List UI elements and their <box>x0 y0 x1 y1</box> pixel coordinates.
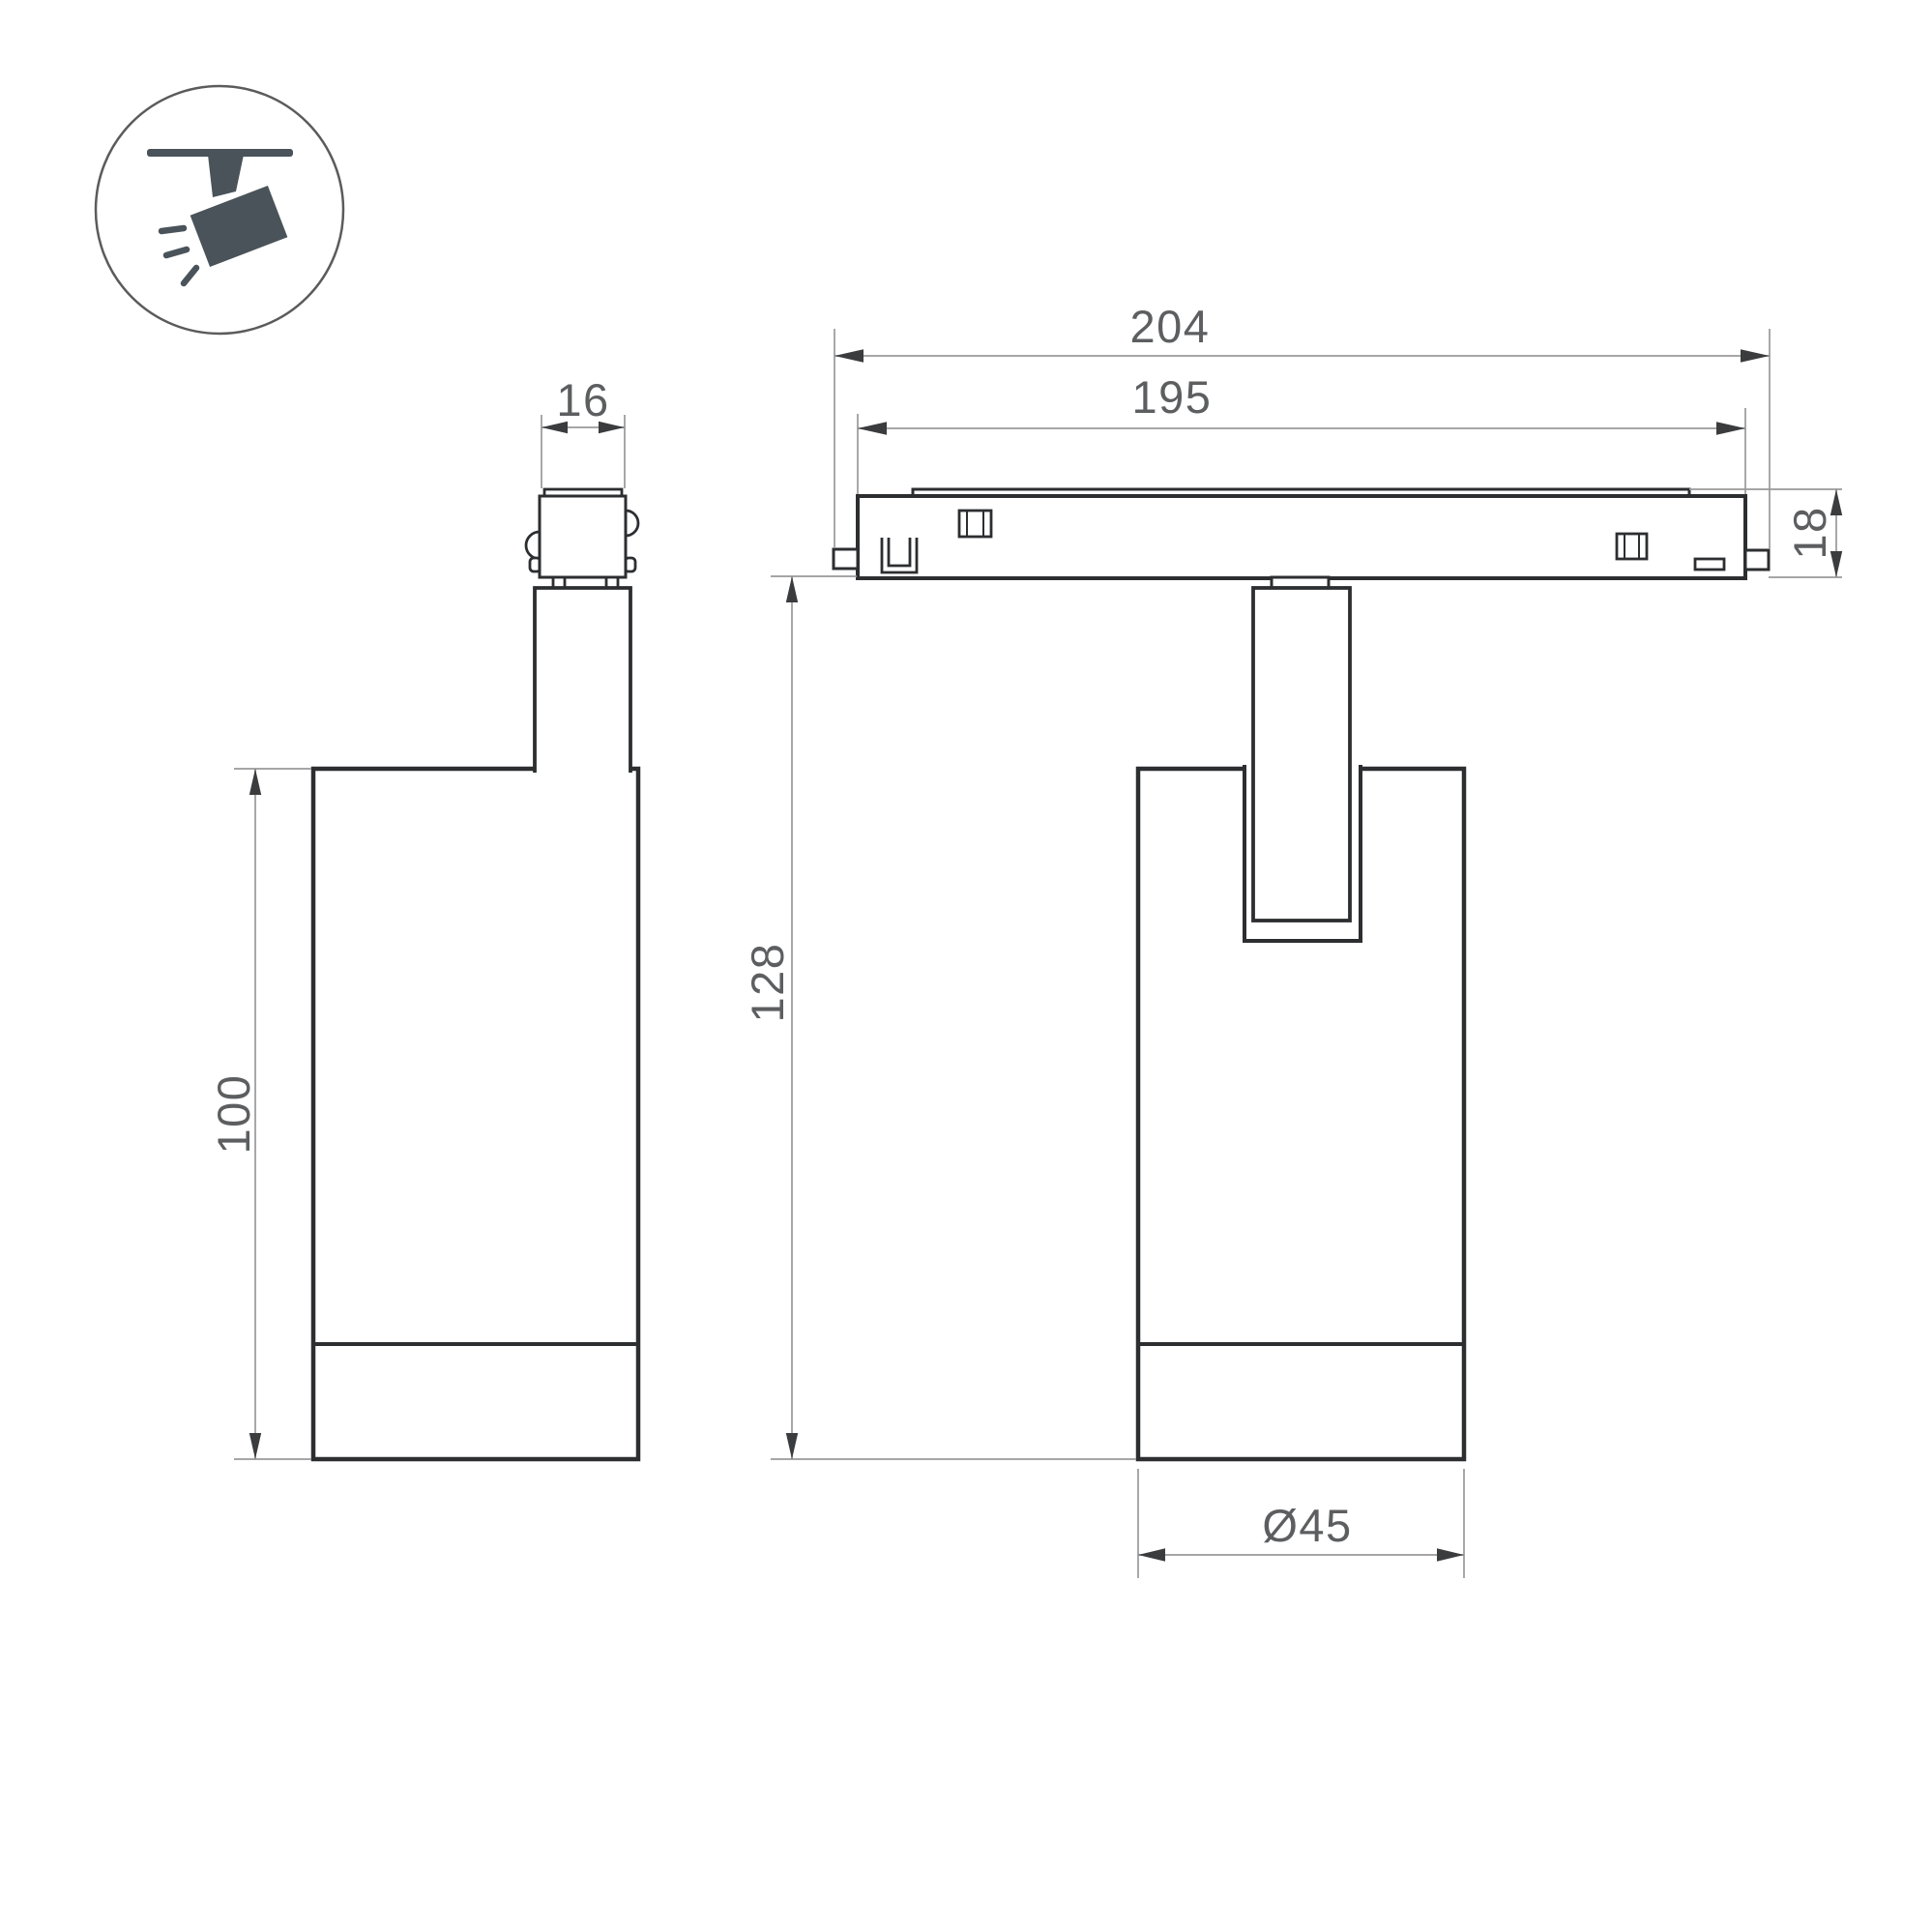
arrowhead-bottom <box>786 1433 798 1459</box>
arrowhead-bottom <box>249 1433 261 1459</box>
front-body <box>313 769 638 1459</box>
dim-label-d45: Ø45 <box>1262 1500 1352 1551</box>
front-connector-latch-right <box>626 511 638 536</box>
dim-label-16: 16 <box>556 374 609 425</box>
dim-overall-height: 128 <box>742 576 1136 1459</box>
icon-badge <box>96 86 343 334</box>
technical-drawing-page: 16 100 <box>0 0 1932 1932</box>
dim-label-195: 195 <box>1132 371 1213 423</box>
arrowhead-left <box>1138 1548 1165 1562</box>
arrowhead-left <box>858 422 887 435</box>
dim-label-204: 204 <box>1130 301 1211 352</box>
front-connector-latch-left <box>526 532 540 559</box>
track-end-tab-right <box>1745 550 1769 570</box>
dimension-drawing: 16 100 <box>0 0 1932 1932</box>
dim-label-128: 128 <box>742 943 793 1023</box>
track-clip-square-right <box>1617 534 1647 559</box>
arrowhead-right <box>1741 349 1770 363</box>
dim-body-height: 100 <box>208 769 311 1459</box>
extension-lines <box>858 408 1745 494</box>
arrowhead-left <box>834 349 864 363</box>
side-stem <box>1253 588 1350 921</box>
side-view: 204 195 18 128 <box>742 301 1842 1578</box>
icon-light-ray <box>161 228 184 231</box>
arrowhead-right <box>1437 1548 1464 1562</box>
dim-body-diameter: Ø45 <box>1138 1469 1464 1578</box>
arrowhead-top <box>786 576 798 602</box>
arrowhead-right <box>1716 422 1745 435</box>
dim-track-length: 195 <box>858 371 1745 494</box>
front-stem <box>535 588 630 773</box>
track-slot <box>1695 559 1724 570</box>
track-end-tab-left <box>834 549 858 569</box>
front-view: 16 100 <box>208 374 638 1459</box>
dim-connector-width: 16 <box>542 374 625 488</box>
extension-lines <box>771 576 1136 1459</box>
front-connector-box <box>540 496 626 577</box>
dim-label-18: 18 <box>1784 506 1835 559</box>
track-clip-square-left <box>959 511 991 537</box>
dim-label-100: 100 <box>208 1074 259 1155</box>
arrowhead-top <box>249 769 261 795</box>
